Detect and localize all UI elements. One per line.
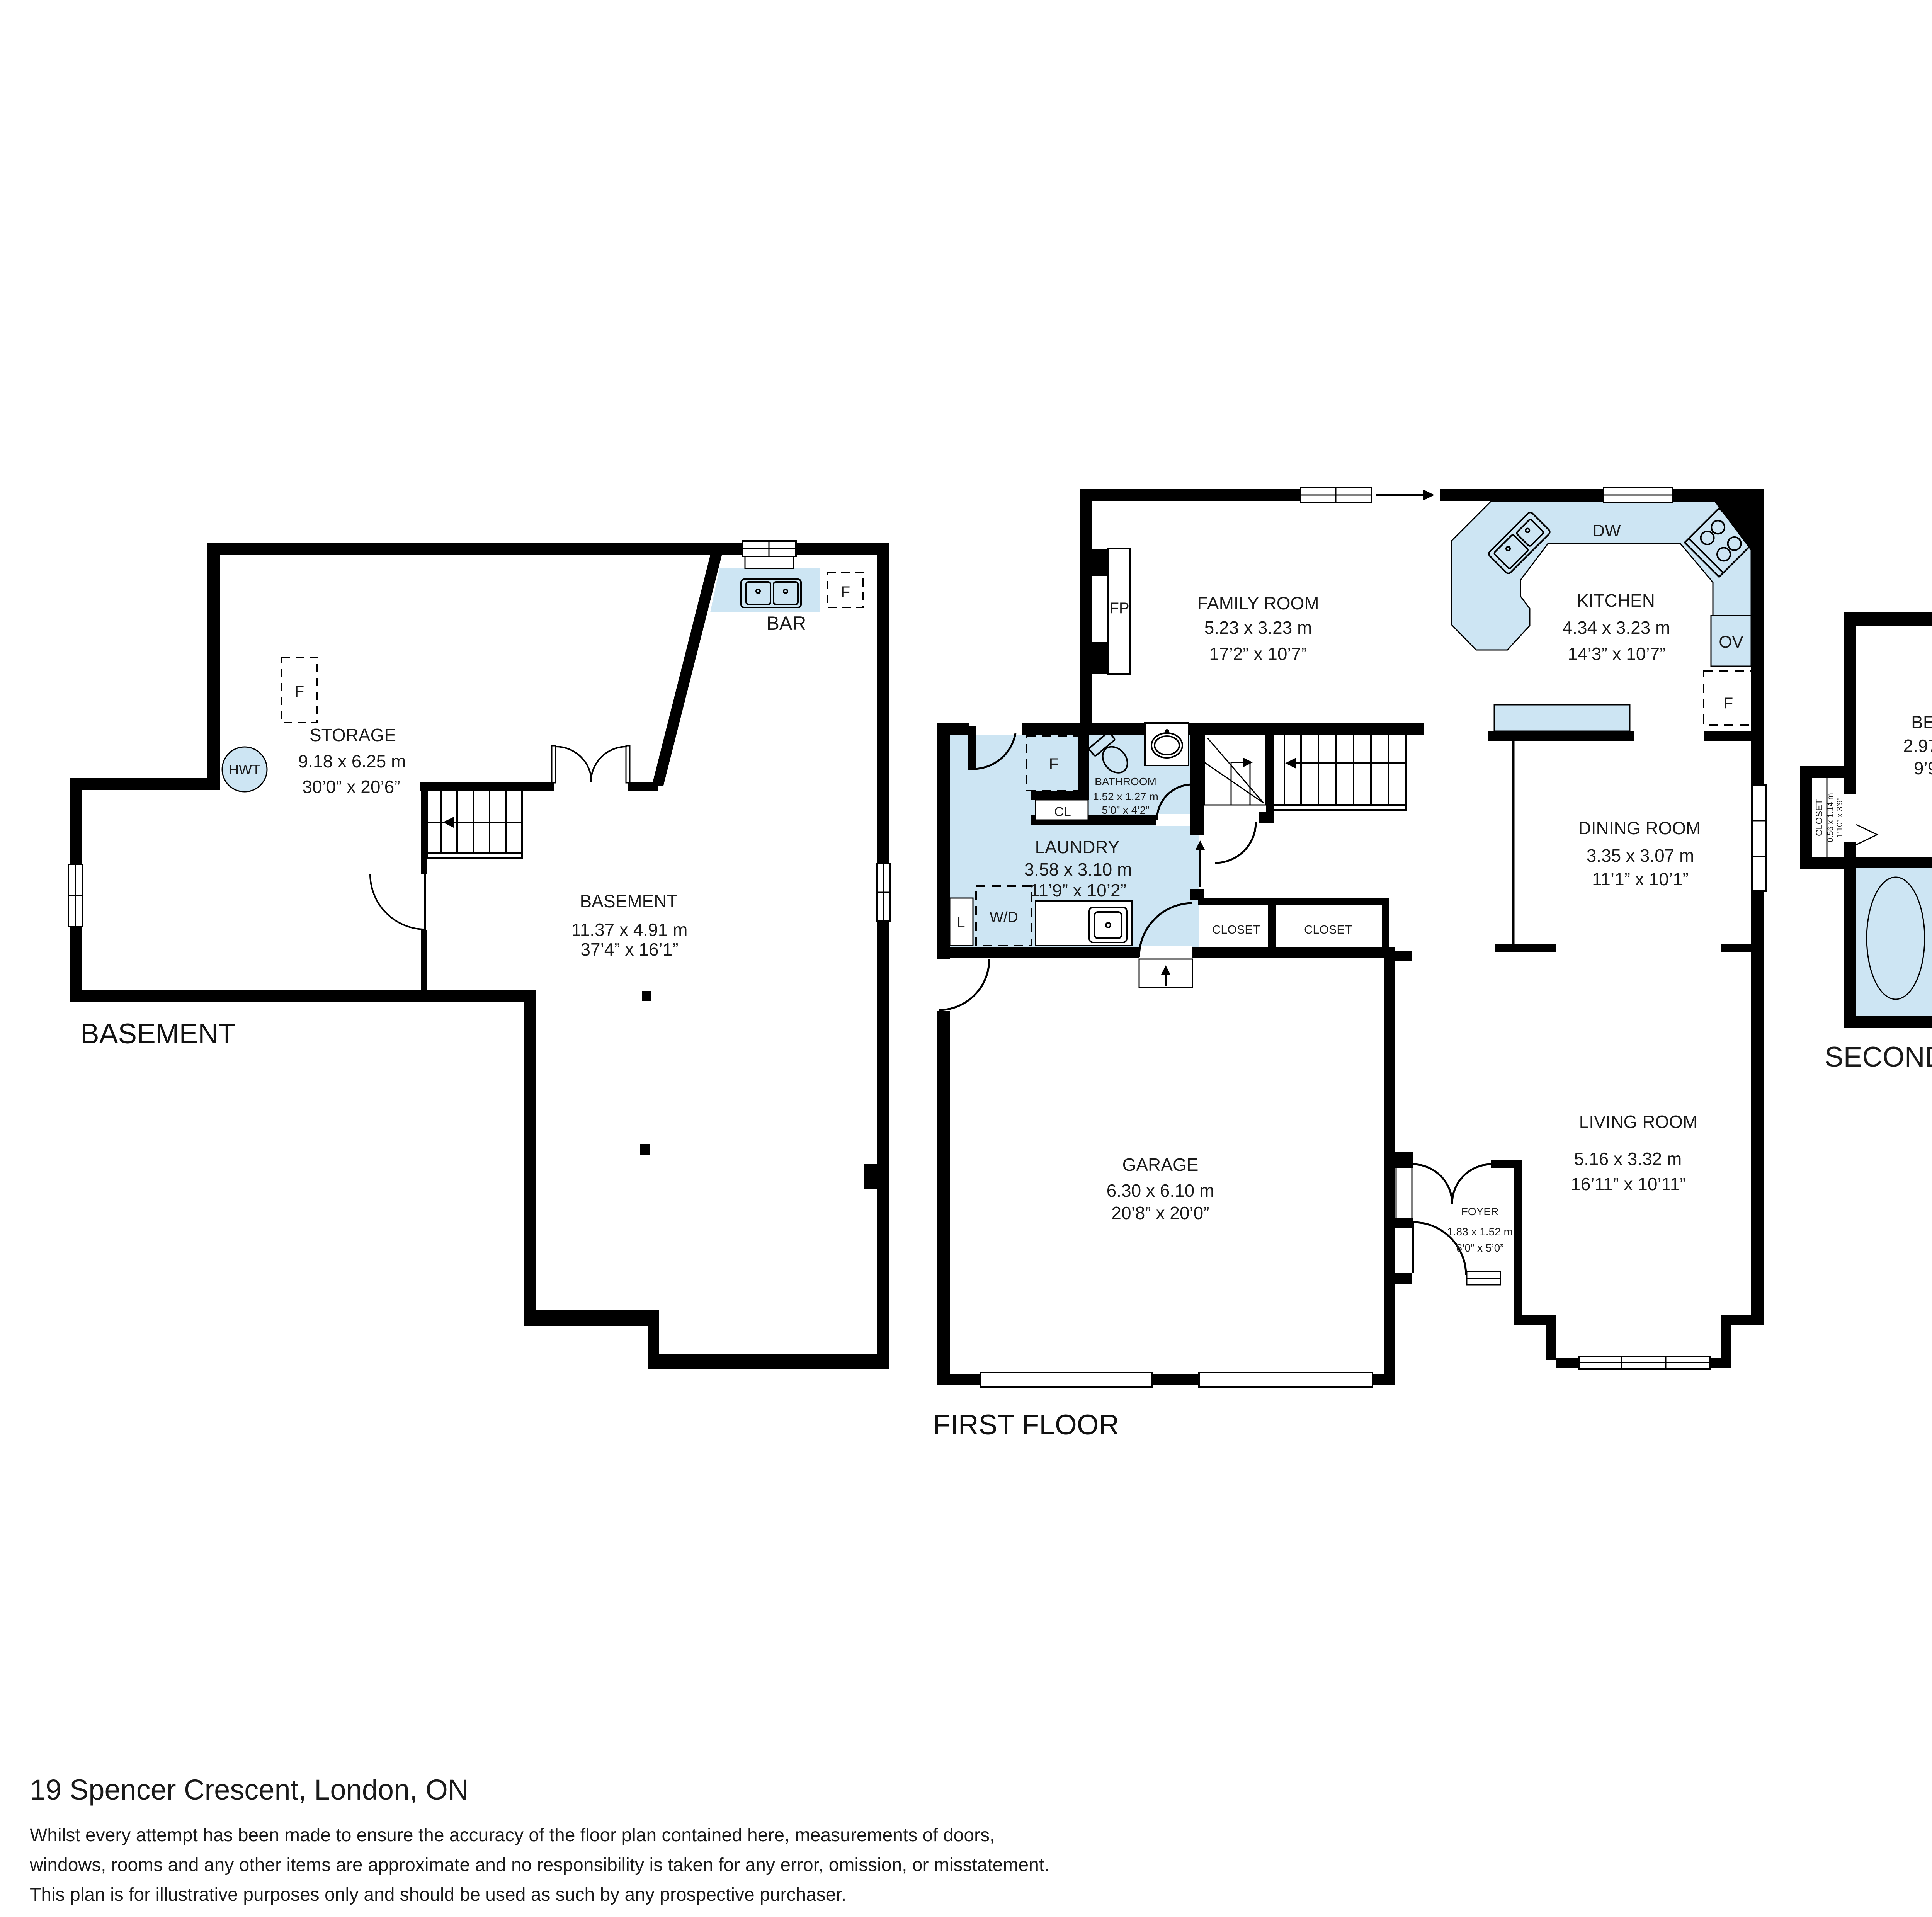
svg-text:LIVING ROOM: LIVING ROOM (1579, 1112, 1698, 1132)
svg-text:CL: CL (1054, 805, 1071, 819)
svg-text:5’0” x 4’2”: 5’0” x 4’2” (1102, 804, 1150, 816)
svg-text:16’11” x 10’11”: 16’11” x 10’11” (1571, 1174, 1685, 1194)
svg-text:4.34 x 3.23 m: 4.34 x 3.23 m (1563, 617, 1670, 638)
svg-text:BATHROOM: BATHROOM (1095, 776, 1156, 788)
svg-text:9.18 x 6.25 m: 9.18 x 6.25 m (298, 751, 406, 771)
svg-text:CLOSET: CLOSET (1814, 799, 1825, 836)
svg-text:17’2” x 10’7”: 17’2” x 10’7” (1209, 644, 1307, 664)
svg-text:1’10” x 3’9”: 1’10” x 3’9” (1835, 798, 1844, 838)
svg-text:F: F (295, 683, 304, 700)
svg-text:BASEMENT: BASEMENT (80, 1018, 236, 1050)
svg-text:FAMILY ROOM: FAMILY ROOM (1197, 593, 1319, 613)
svg-text:DW: DW (1592, 521, 1621, 540)
svg-text:37’4” x 16’1”: 37’4” x 16’1” (580, 939, 678, 959)
svg-text:1.83 x 1.52 m: 1.83 x 1.52 m (1447, 1226, 1513, 1238)
svg-text:OV: OV (1719, 633, 1743, 651)
svg-text:CLOSET: CLOSET (1212, 923, 1260, 936)
svg-text:CLOSET: CLOSET (1304, 923, 1352, 936)
svg-text:0.56 x 1.14 m: 0.56 x 1.14 m (1826, 793, 1835, 842)
svg-text:FP: FP (1109, 600, 1129, 617)
svg-text:SECOND FLOOR: SECOND FLOOR (1825, 1041, 1932, 1073)
svg-text:BASEMENT: BASEMENT (580, 891, 677, 911)
svg-text:GARAGE: GARAGE (1122, 1155, 1199, 1175)
svg-text:F: F (1724, 695, 1733, 712)
svg-text:20’8” x 20’0”: 20’8” x 20’0” (1111, 1203, 1209, 1223)
svg-text:6’0” x 5’0”: 6’0” x 5’0” (1456, 1242, 1504, 1254)
svg-text:19 Spencer Crescent, London, O: 19 Spencer Crescent, London, ON (30, 1774, 468, 1806)
svg-text:windows, rooms and any other i: windows, rooms and any other items are a… (29, 1855, 1049, 1875)
svg-text:11.37 x 4.91 m: 11.37 x 4.91 m (571, 920, 688, 940)
svg-text:F: F (841, 583, 850, 600)
svg-text:3.35 x 3.07 m: 3.35 x 3.07 m (1587, 845, 1694, 866)
svg-text:BAR: BAR (767, 612, 806, 634)
svg-text:KITCHEN: KITCHEN (1577, 590, 1655, 611)
svg-text:2.97 x 3.38 m: 2.97 x 3.38 m (1903, 736, 1932, 756)
svg-text:30’0” x 20’6”: 30’0” x 20’6” (302, 777, 400, 797)
svg-text:BEDROOM: BEDROOM (1911, 712, 1932, 732)
svg-text:W/D: W/D (990, 909, 1018, 925)
svg-text:14’3” x 10’7”: 14’3” x 10’7” (1568, 644, 1665, 664)
svg-text:HWT: HWT (229, 762, 260, 777)
svg-text:6.30 x 6.10 m: 6.30 x 6.10 m (1107, 1180, 1214, 1201)
svg-text:Whilst every attempt has been: Whilst every attempt has been made to en… (30, 1825, 995, 1846)
svg-text:DINING ROOM: DINING ROOM (1578, 818, 1701, 838)
svg-text:This plan is for illustrative: This plan is for illustrative purposes o… (30, 1885, 846, 1905)
svg-text:9’9” x 11’1”: 9’9” x 11’1” (1914, 758, 1932, 778)
svg-text:LAUNDRY: LAUNDRY (1035, 837, 1120, 857)
svg-text:F: F (1049, 755, 1058, 772)
svg-text:3.58 x 3.10 m: 3.58 x 3.10 m (1024, 859, 1132, 879)
svg-text:5.23 x 3.23 m: 5.23 x 3.23 m (1204, 617, 1312, 638)
svg-text:STORAGE: STORAGE (310, 725, 396, 745)
svg-text:5.16 x 3.32 m: 5.16 x 3.32 m (1574, 1149, 1682, 1169)
svg-text:11’9” x 10’2”: 11’9” x 10’2” (1030, 880, 1126, 900)
svg-text:1.52 x 1.27 m: 1.52 x 1.27 m (1093, 791, 1158, 803)
svg-text:L: L (957, 915, 965, 931)
svg-text:FIRST FLOOR: FIRST FLOOR (933, 1409, 1119, 1441)
svg-text:FOYER: FOYER (1461, 1206, 1498, 1218)
svg-text:11’1” x 10’1”: 11’1” x 10’1” (1592, 869, 1689, 889)
